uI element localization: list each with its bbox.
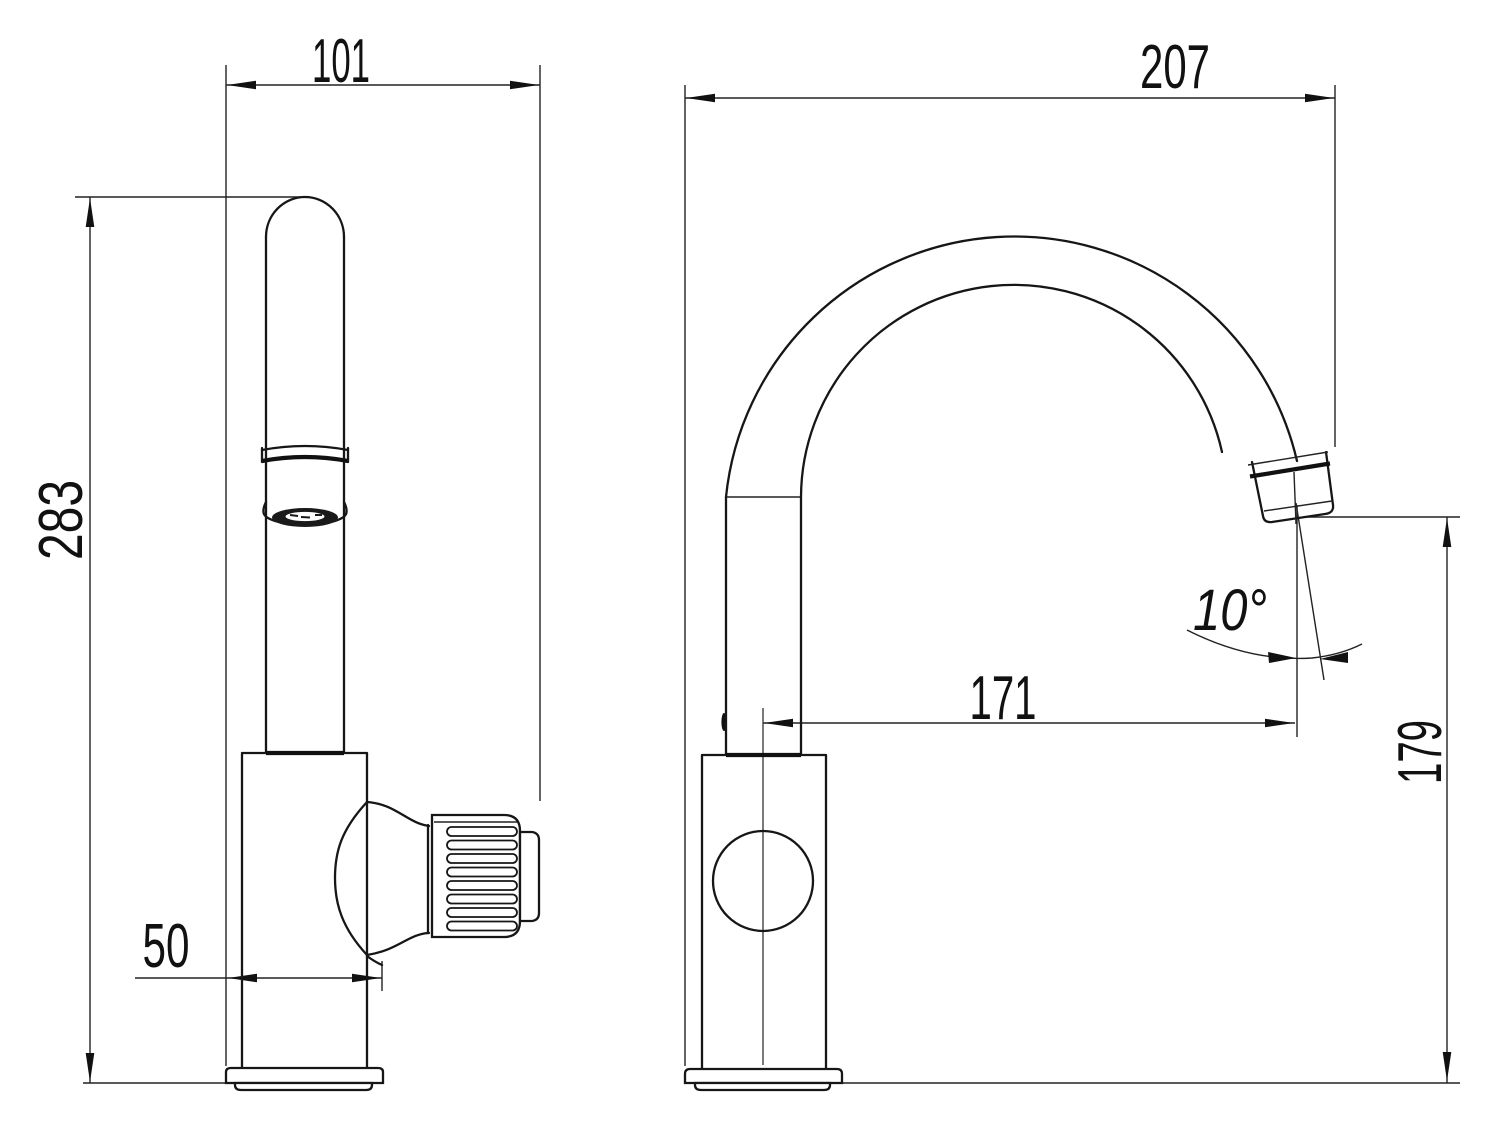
dim-50-label: 50 [143, 912, 190, 981]
dim-283-label: 283 [27, 480, 96, 560]
spout-cap [266, 197, 344, 237]
knob-end-cap [520, 832, 539, 921]
left-base [226, 1068, 383, 1090]
right-base [685, 1069, 842, 1090]
right-body [702, 755, 826, 1069]
faucet-technical-drawing: 101 207 283 50 171 179 10° [0, 0, 1500, 1125]
dim-101-label: 101 [312, 27, 370, 96]
dim-207-label: 207 [1140, 33, 1210, 102]
dim-179-label: 179 [1386, 720, 1455, 784]
handle-knob [335, 802, 539, 965]
gooseneck-spout [726, 237, 1333, 524]
dim-207 [685, 85, 1335, 1066]
dim-angle-label: 10° [1193, 578, 1267, 643]
drawing-canvas: 101 207 283 50 171 179 10° [0, 0, 1500, 1125]
dim-171-label: 171 [970, 664, 1037, 733]
dim-179 [842, 517, 1460, 1083]
aerator [263, 502, 346, 527]
spout-ring [262, 446, 348, 462]
left-view [226, 197, 539, 1090]
left-body [242, 753, 367, 1068]
